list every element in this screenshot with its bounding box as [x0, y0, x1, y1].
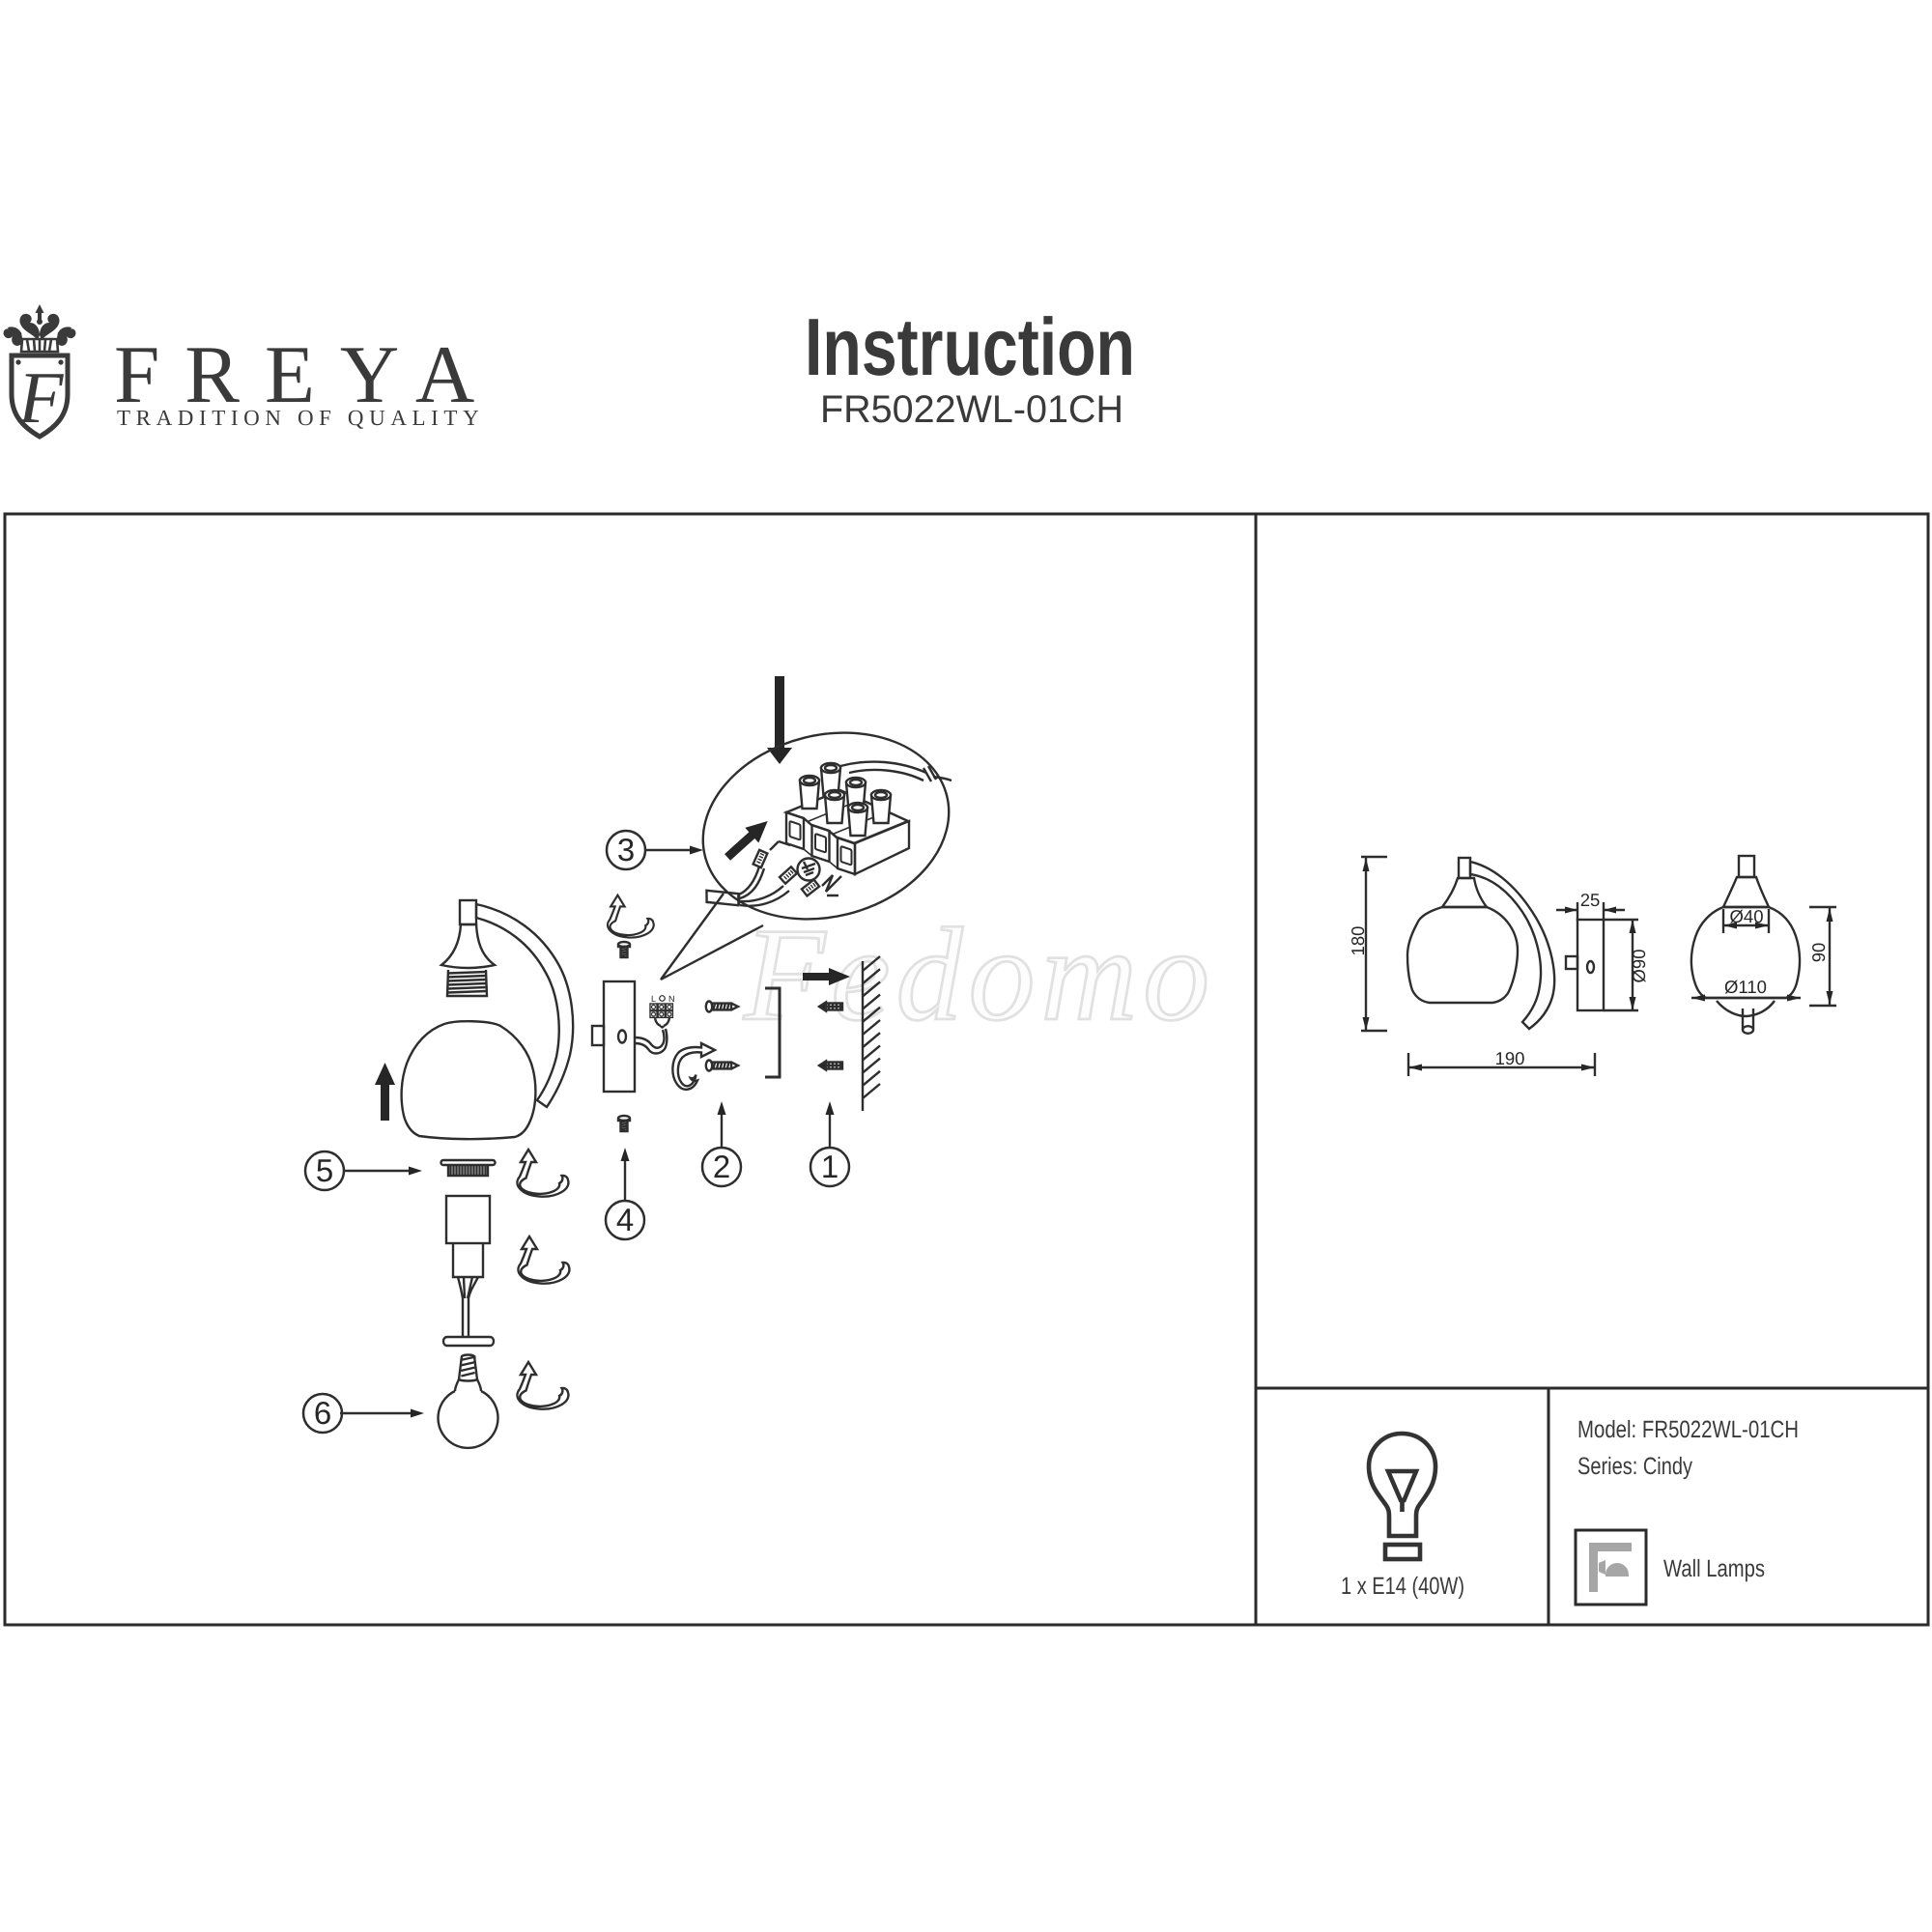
svg-text:180: 180: [1348, 926, 1368, 956]
svg-text:90: 90: [1808, 943, 1829, 963]
svg-text:2: 2: [713, 1149, 730, 1184]
svg-text:Series: Cindy: Series: Cindy: [1577, 1453, 1692, 1480]
svg-text:3: 3: [617, 832, 635, 867]
svg-text:N: N: [668, 994, 675, 1004]
svg-text:Ø40: Ø40: [1730, 906, 1764, 926]
svg-text:L: L: [651, 994, 660, 1004]
svg-text:1 x E14 (40W): 1 x E14 (40W): [1341, 1573, 1464, 1600]
svg-text:4: 4: [616, 1202, 634, 1237]
svg-text:25: 25: [1580, 890, 1601, 910]
svg-text:Wall Lamps: Wall Lamps: [1663, 1555, 1765, 1582]
svg-text:FR5022WL-01CH: FR5022WL-01CH: [820, 388, 1123, 431]
svg-text:Instruction: Instruction: [805, 301, 1135, 392]
svg-text:1: 1: [821, 1149, 838, 1184]
svg-text:F: F: [17, 357, 65, 439]
svg-text:190: 190: [1495, 1048, 1525, 1068]
svg-text:6: 6: [314, 1395, 331, 1431]
svg-text:Ø90: Ø90: [1629, 950, 1649, 983]
svg-text:TRADITION OF QUALITY: TRADITION OF QUALITY: [117, 406, 484, 430]
svg-text:Ø110: Ø110: [1724, 977, 1767, 997]
svg-text:5: 5: [316, 1152, 333, 1188]
svg-text:Model: FR5022WL-01CH: Model: FR5022WL-01CH: [1577, 1416, 1799, 1443]
